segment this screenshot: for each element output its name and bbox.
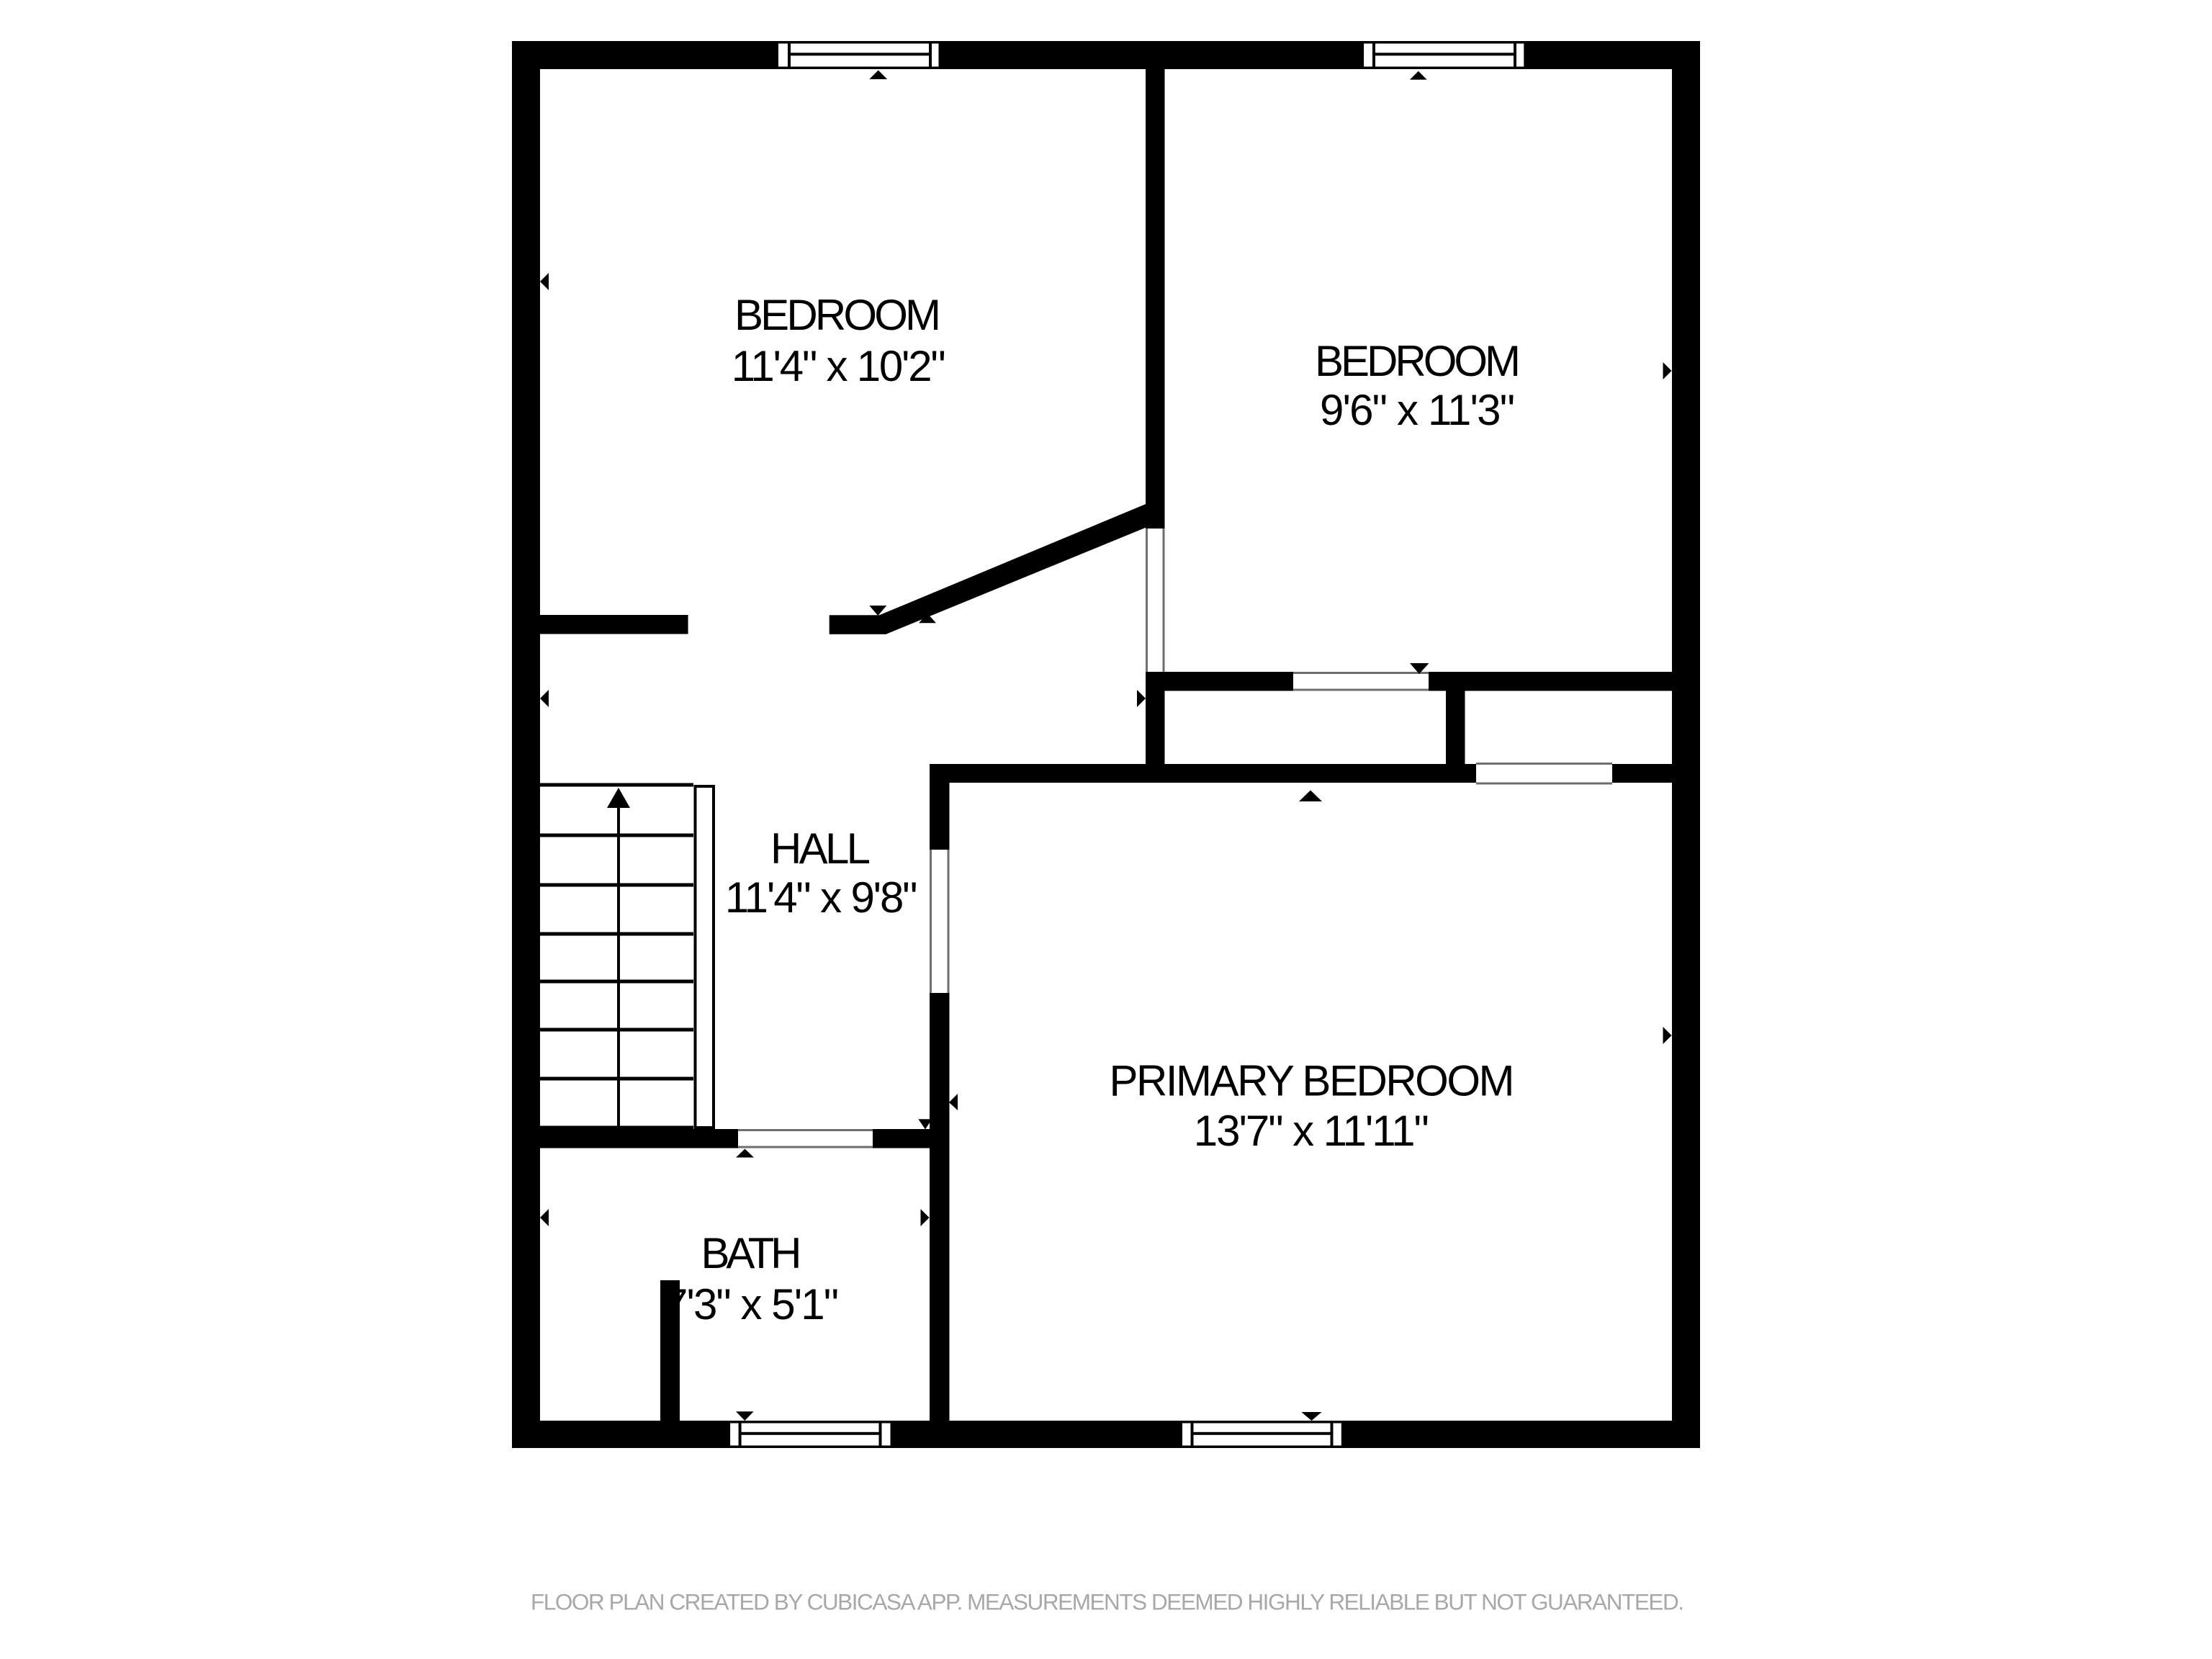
svg-text:9'6" x 11'3": 9'6" x 11'3": [1320, 386, 1515, 434]
svg-text:BEDROOM: BEDROOM: [1315, 337, 1521, 385]
svg-text:11'4" x 10'2": 11'4" x 10'2": [732, 342, 946, 390]
svg-text:BATH: BATH: [701, 1229, 802, 1277]
svg-text:FLOOR PLAN CREATED BY CUBICASA: FLOOR PLAN CREATED BY CUBICASA APP. MEAS…: [531, 1589, 1684, 1615]
svg-text:13'7" x 11'11": 13'7" x 11'11": [1194, 1107, 1429, 1155]
svg-text:11'4" x 9'8": 11'4" x 9'8": [725, 873, 918, 922]
svg-text:HALL: HALL: [770, 824, 871, 873]
svg-text:PRIMARY BEDROOM: PRIMARY BEDROOM: [1110, 1057, 1515, 1105]
svg-text:7'3" x 5'1": 7'3" x 5'1": [664, 1280, 839, 1328]
svg-text:BEDROOM: BEDROOM: [734, 291, 941, 339]
